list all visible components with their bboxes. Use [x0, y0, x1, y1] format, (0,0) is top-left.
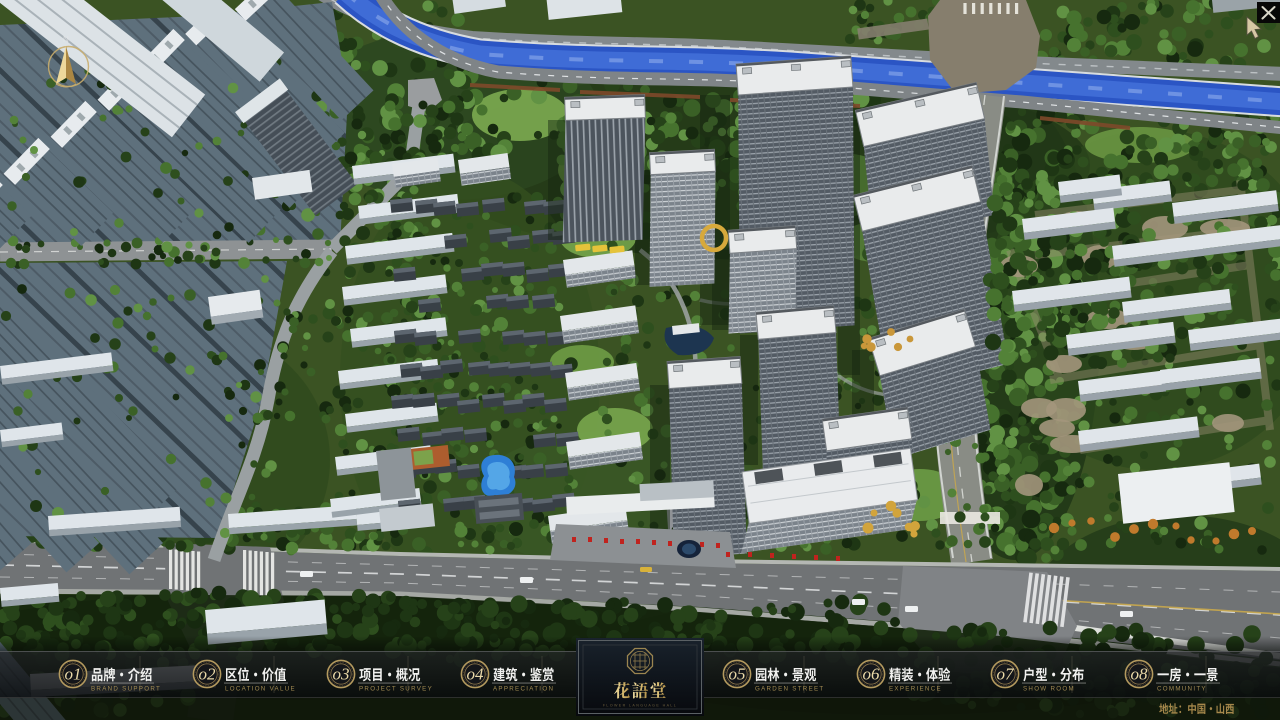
svg-text:GARDEN STREET: GARDEN STREET	[755, 686, 825, 693]
svg-text:o8: o8	[1131, 665, 1149, 684]
svg-text:o7: o7	[997, 665, 1016, 684]
svg-text:o2: o2	[199, 665, 217, 684]
svg-text:SHOW ROOM: SHOW ROOM	[1023, 686, 1075, 693]
svg-text:LOCATION VALUE: LOCATION VALUE	[225, 686, 296, 693]
svg-text:o3: o3	[333, 665, 350, 684]
svg-text:APPRECIATION: APPRECIATION	[493, 686, 554, 693]
svg-text:FLOWER LANGUAGE HALL: FLOWER LANGUAGE HALL	[603, 704, 677, 708]
svg-text:N: N	[63, 35, 69, 44]
svg-text:o6: o6	[863, 665, 881, 684]
svg-text:o5: o5	[729, 665, 746, 684]
svg-text:o4: o4	[467, 665, 485, 684]
svg-text:BRAND SUPPORT: BRAND SUPPORT	[91, 686, 161, 693]
svg-text:PROJECT SURVEY: PROJECT SURVEY	[359, 686, 433, 693]
svg-text:EXPERIENCE: EXPERIENCE	[889, 686, 942, 693]
svg-text:o1: o1	[65, 665, 82, 684]
svg-text:COMMUNITY: COMMUNITY	[1157, 686, 1207, 693]
